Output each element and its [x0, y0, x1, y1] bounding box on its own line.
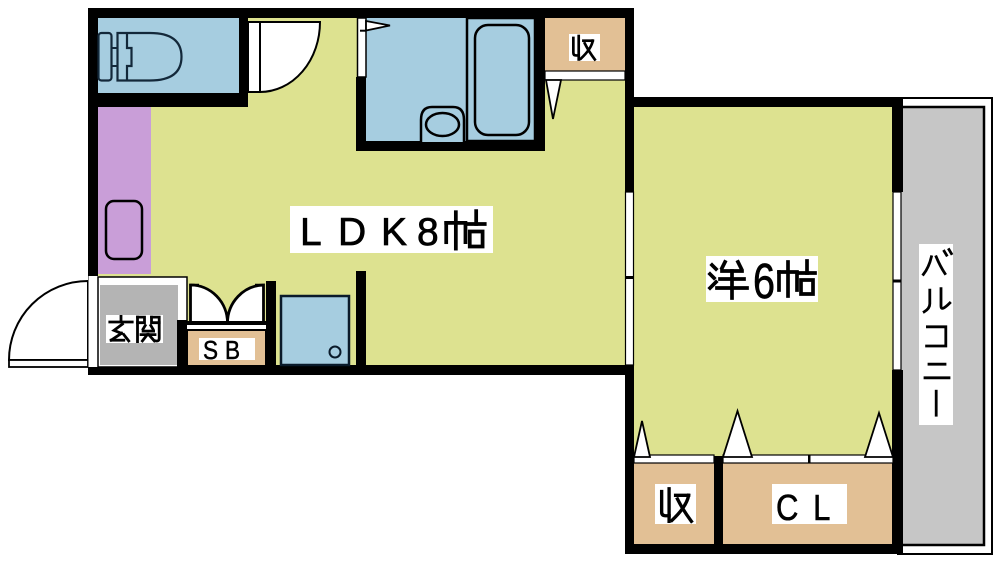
- svg-text:L: L: [300, 211, 322, 254]
- svg-text:D: D: [338, 211, 366, 254]
- svg-text:CL: CL: [776, 487, 845, 528]
- svg-text:8: 8: [417, 211, 439, 254]
- svg-text:K: K: [381, 211, 407, 254]
- svg-text:6: 6: [753, 255, 775, 309]
- svg-text:SB: SB: [203, 335, 247, 365]
